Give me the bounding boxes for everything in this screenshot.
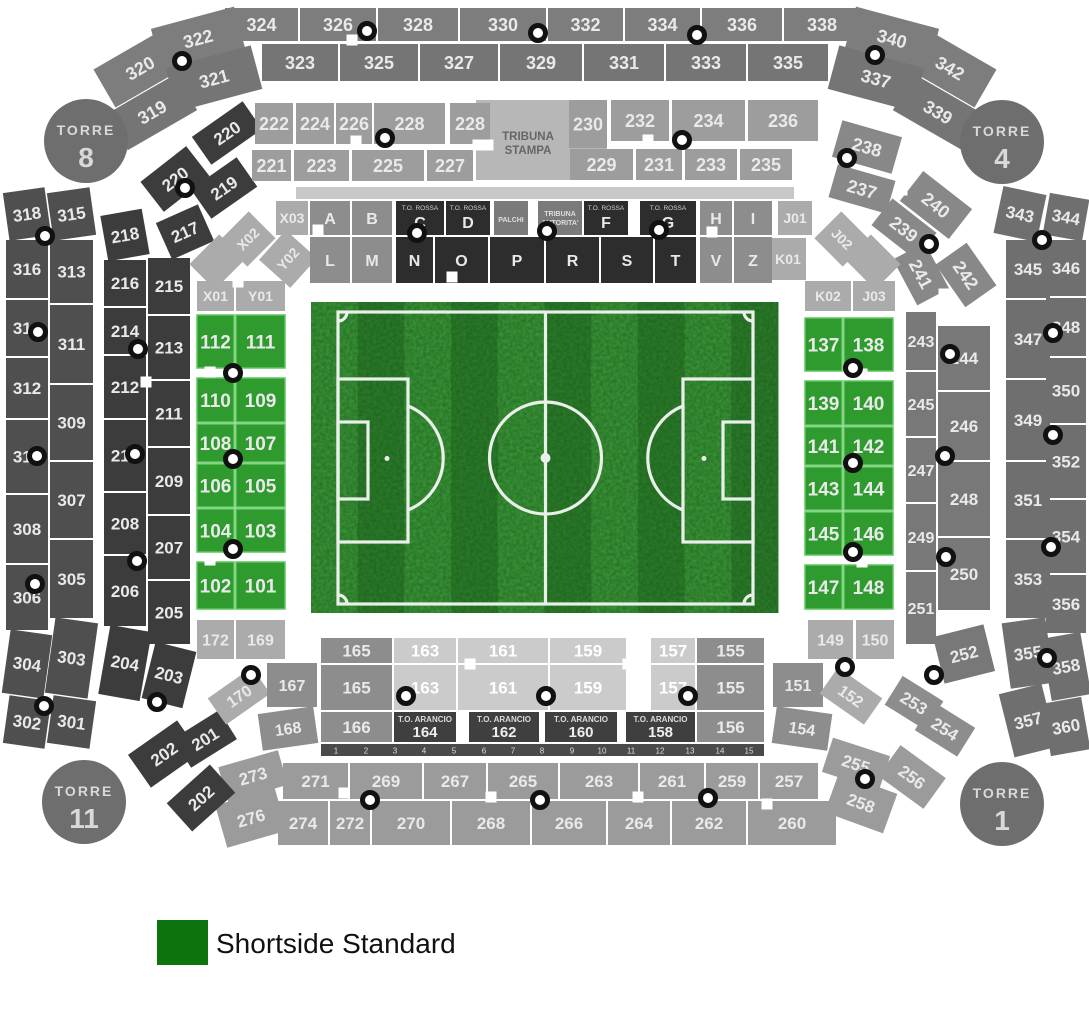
svg-text:B: B <box>366 211 378 228</box>
svg-text:356: 356 <box>1052 595 1080 614</box>
svg-text:313: 313 <box>57 263 85 282</box>
svg-text:247: 247 <box>908 463 935 480</box>
svg-text:105: 105 <box>245 476 277 497</box>
svg-text:PALCHI: PALCHI <box>498 217 524 224</box>
svg-text:215: 215 <box>155 277 183 296</box>
svg-text:X01: X01 <box>203 288 228 304</box>
svg-text:232: 232 <box>625 111 655 131</box>
svg-text:T.O. ROSSA: T.O. ROSSA <box>650 205 687 212</box>
svg-text:221: 221 <box>256 156 286 176</box>
svg-text:141: 141 <box>808 437 840 458</box>
svg-text:14: 14 <box>716 747 725 756</box>
svg-text:139: 139 <box>808 394 840 415</box>
svg-text:226: 226 <box>339 114 369 134</box>
svg-text:214: 214 <box>111 322 140 341</box>
svg-text:112: 112 <box>200 332 231 353</box>
svg-text:1: 1 <box>994 805 1010 836</box>
svg-text:6: 6 <box>482 747 487 756</box>
svg-text:234: 234 <box>693 111 723 131</box>
svg-text:327: 327 <box>444 53 474 73</box>
svg-text:233: 233 <box>696 155 726 175</box>
svg-text:330: 330 <box>488 15 518 35</box>
svg-text:Shortside Standard: Shortside Standard <box>216 928 456 959</box>
svg-text:270: 270 <box>397 814 425 833</box>
svg-text:336: 336 <box>727 15 757 35</box>
svg-text:248: 248 <box>950 490 978 509</box>
svg-text:5: 5 <box>452 747 457 756</box>
svg-text:TORRE: TORRE <box>55 783 114 799</box>
svg-text:243: 243 <box>908 334 935 351</box>
svg-text:245: 245 <box>908 397 935 414</box>
svg-text:A: A <box>324 211 336 228</box>
svg-text:222: 222 <box>259 114 289 134</box>
svg-text:211: 211 <box>155 405 182 424</box>
svg-text:225: 225 <box>373 156 403 176</box>
svg-text:P: P <box>512 253 523 270</box>
svg-text:102: 102 <box>200 576 232 597</box>
svg-text:155: 155 <box>716 679 744 698</box>
svg-text:11: 11 <box>627 747 636 756</box>
svg-text:157: 157 <box>659 642 687 661</box>
svg-text:161: 161 <box>489 679 517 698</box>
svg-text:TORRE: TORRE <box>973 785 1032 801</box>
svg-text:303: 303 <box>56 647 87 670</box>
svg-text:338: 338 <box>807 15 837 35</box>
svg-text:107: 107 <box>245 434 277 455</box>
svg-text:165: 165 <box>342 679 370 698</box>
svg-text:160: 160 <box>568 724 593 741</box>
svg-text:T.O. ROSSA: T.O. ROSSA <box>588 205 625 212</box>
svg-text:2: 2 <box>364 747 369 756</box>
svg-text:312: 312 <box>13 379 41 398</box>
svg-text:M: M <box>365 253 378 270</box>
svg-text:150: 150 <box>862 632 889 649</box>
svg-text:T.O. ARANCIO: T.O. ARANCIO <box>554 715 608 724</box>
svg-text:208: 208 <box>111 515 139 534</box>
svg-text:315: 315 <box>56 203 87 226</box>
svg-text:K01: K01 <box>775 251 801 267</box>
svg-text:331: 331 <box>609 53 639 73</box>
svg-text:Y01: Y01 <box>248 288 273 304</box>
svg-text:271: 271 <box>301 772 329 791</box>
svg-text:236: 236 <box>768 111 798 131</box>
svg-text:333: 333 <box>691 53 721 73</box>
svg-text:4: 4 <box>994 143 1010 174</box>
svg-text:334: 334 <box>647 15 677 35</box>
svg-text:235: 235 <box>751 155 781 175</box>
svg-text:231: 231 <box>644 155 674 175</box>
svg-text:266: 266 <box>555 814 583 833</box>
svg-text:249: 249 <box>908 530 935 547</box>
svg-text:143: 143 <box>808 479 840 500</box>
svg-text:J03: J03 <box>862 288 886 304</box>
svg-text:304: 304 <box>12 653 43 676</box>
svg-text:STAMPA: STAMPA <box>505 145 552 157</box>
svg-text:305: 305 <box>57 570 85 589</box>
svg-text:229: 229 <box>586 155 616 175</box>
svg-text:I: I <box>751 211 755 228</box>
svg-text:329: 329 <box>526 53 556 73</box>
svg-text:138: 138 <box>853 335 885 356</box>
svg-text:260: 260 <box>778 814 806 833</box>
svg-text:264: 264 <box>625 814 654 833</box>
svg-text:159: 159 <box>574 679 602 698</box>
svg-text:349: 349 <box>1014 411 1042 430</box>
svg-text:347: 347 <box>1014 330 1042 349</box>
svg-text:T.O. ARANCIO: T.O. ARANCIO <box>477 715 531 724</box>
svg-text:162: 162 <box>491 724 516 741</box>
svg-text:149: 149 <box>817 632 844 649</box>
svg-text:109: 109 <box>245 391 277 412</box>
svg-text:272: 272 <box>336 814 364 833</box>
svg-text:F: F <box>601 215 611 232</box>
svg-text:TRIBUNA: TRIBUNA <box>544 211 576 218</box>
svg-text:351: 351 <box>1014 491 1042 510</box>
svg-text:311: 311 <box>58 335 85 354</box>
svg-text:259: 259 <box>718 772 746 791</box>
svg-text:172: 172 <box>202 632 229 649</box>
svg-text:X03: X03 <box>280 210 305 226</box>
svg-text:TORRE: TORRE <box>57 122 116 138</box>
svg-text:324: 324 <box>246 15 276 35</box>
svg-text:H: H <box>710 211 722 228</box>
svg-text:164: 164 <box>412 724 438 741</box>
svg-text:263: 263 <box>585 772 613 791</box>
svg-text:257: 257 <box>775 772 803 791</box>
svg-text:TORRE: TORRE <box>973 123 1032 139</box>
svg-text:307: 307 <box>57 491 85 510</box>
svg-text:169: 169 <box>247 632 274 649</box>
svg-text:224: 224 <box>300 114 330 134</box>
svg-text:T.O. ROSSA: T.O. ROSSA <box>402 205 439 212</box>
svg-text:TRIBUNA: TRIBUNA <box>502 131 554 143</box>
svg-text:103: 103 <box>245 521 277 542</box>
svg-text:228: 228 <box>394 114 424 134</box>
svg-text:104: 104 <box>200 521 232 542</box>
svg-text:145: 145 <box>808 524 840 545</box>
svg-text:L: L <box>325 253 335 270</box>
svg-text:4: 4 <box>422 747 427 756</box>
svg-text:1: 1 <box>334 747 339 756</box>
svg-text:323: 323 <box>285 53 315 73</box>
svg-text:228: 228 <box>455 114 485 134</box>
svg-text:223: 223 <box>306 156 336 176</box>
svg-text:110: 110 <box>200 391 231 412</box>
svg-text:11: 11 <box>69 803 99 834</box>
svg-text:352: 352 <box>1052 453 1080 472</box>
svg-text:308: 308 <box>13 520 41 539</box>
svg-text:205: 205 <box>155 604 183 623</box>
svg-text:K02: K02 <box>815 288 841 304</box>
svg-text:251: 251 <box>908 601 935 618</box>
svg-text:8: 8 <box>540 747 545 756</box>
svg-text:J01: J01 <box>783 210 807 226</box>
svg-text:212: 212 <box>111 378 139 397</box>
svg-text:353: 353 <box>1014 570 1042 589</box>
svg-text:318: 318 <box>12 203 43 226</box>
svg-text:3: 3 <box>393 747 398 756</box>
svg-text:7: 7 <box>511 747 516 756</box>
svg-text:167: 167 <box>279 678 306 695</box>
svg-text:262: 262 <box>695 814 723 833</box>
svg-text:159: 159 <box>574 642 602 661</box>
svg-text:332: 332 <box>570 15 600 35</box>
svg-text:15: 15 <box>745 747 754 756</box>
svg-text:267: 267 <box>441 772 469 791</box>
svg-text:161: 161 <box>489 642 517 661</box>
svg-text:346: 346 <box>1052 259 1080 278</box>
svg-text:227: 227 <box>435 156 465 176</box>
svg-text:246: 246 <box>950 417 978 436</box>
svg-text:163: 163 <box>411 642 439 661</box>
svg-text:148: 148 <box>853 578 885 599</box>
svg-text:N: N <box>409 253 421 270</box>
svg-text:269: 269 <box>372 772 400 791</box>
svg-text:207: 207 <box>155 539 183 558</box>
svg-text:301: 301 <box>56 711 87 734</box>
svg-text:12: 12 <box>656 747 665 756</box>
svg-text:302: 302 <box>12 711 43 734</box>
svg-text:158: 158 <box>648 724 673 741</box>
svg-text:325: 325 <box>364 53 394 73</box>
svg-text:155: 155 <box>716 642 744 661</box>
svg-text:T: T <box>671 253 681 270</box>
svg-text:216: 216 <box>111 274 139 293</box>
svg-text:326: 326 <box>323 15 353 35</box>
svg-text:156: 156 <box>716 718 744 737</box>
svg-text:S: S <box>622 253 633 270</box>
svg-text:209: 209 <box>155 472 183 491</box>
svg-text:144: 144 <box>853 479 885 500</box>
svg-text:250: 250 <box>950 565 978 584</box>
svg-text:328: 328 <box>403 15 433 35</box>
svg-text:106: 106 <box>200 476 232 497</box>
svg-text:165: 165 <box>342 642 370 661</box>
svg-text:146: 146 <box>853 524 885 545</box>
svg-text:268: 268 <box>477 814 505 833</box>
svg-text:D: D <box>462 215 474 232</box>
svg-text:13: 13 <box>686 747 695 756</box>
svg-text:V: V <box>711 253 722 270</box>
svg-text:9: 9 <box>570 747 575 756</box>
svg-text:274: 274 <box>289 814 318 833</box>
svg-text:111: 111 <box>246 332 276 353</box>
svg-text:147: 147 <box>808 578 840 599</box>
svg-text:T.O. ROSSA: T.O. ROSSA <box>450 205 487 212</box>
svg-text:O: O <box>455 253 467 270</box>
svg-text:101: 101 <box>245 576 277 597</box>
svg-text:213: 213 <box>155 339 183 358</box>
svg-text:265: 265 <box>509 772 537 791</box>
svg-text:137: 137 <box>808 335 840 356</box>
svg-text:350: 350 <box>1052 382 1080 401</box>
svg-text:335: 335 <box>773 53 803 73</box>
svg-text:140: 140 <box>853 394 885 415</box>
svg-text:151: 151 <box>785 678 812 695</box>
svg-text:345: 345 <box>1014 260 1042 279</box>
svg-text:166: 166 <box>342 718 370 737</box>
svg-text:316: 316 <box>13 260 41 279</box>
svg-text:T.O. ARANCIO: T.O. ARANCIO <box>398 715 452 724</box>
svg-text:230: 230 <box>573 115 603 135</box>
svg-text:206: 206 <box>111 582 139 601</box>
svg-text:Z: Z <box>748 253 758 270</box>
svg-text:T.O. ARANCIO: T.O. ARANCIO <box>634 715 688 724</box>
svg-text:10: 10 <box>598 747 607 756</box>
svg-text:261: 261 <box>658 772 686 791</box>
svg-text:309: 309 <box>57 414 85 433</box>
svg-text:8: 8 <box>78 142 94 173</box>
svg-text:R: R <box>567 253 579 270</box>
